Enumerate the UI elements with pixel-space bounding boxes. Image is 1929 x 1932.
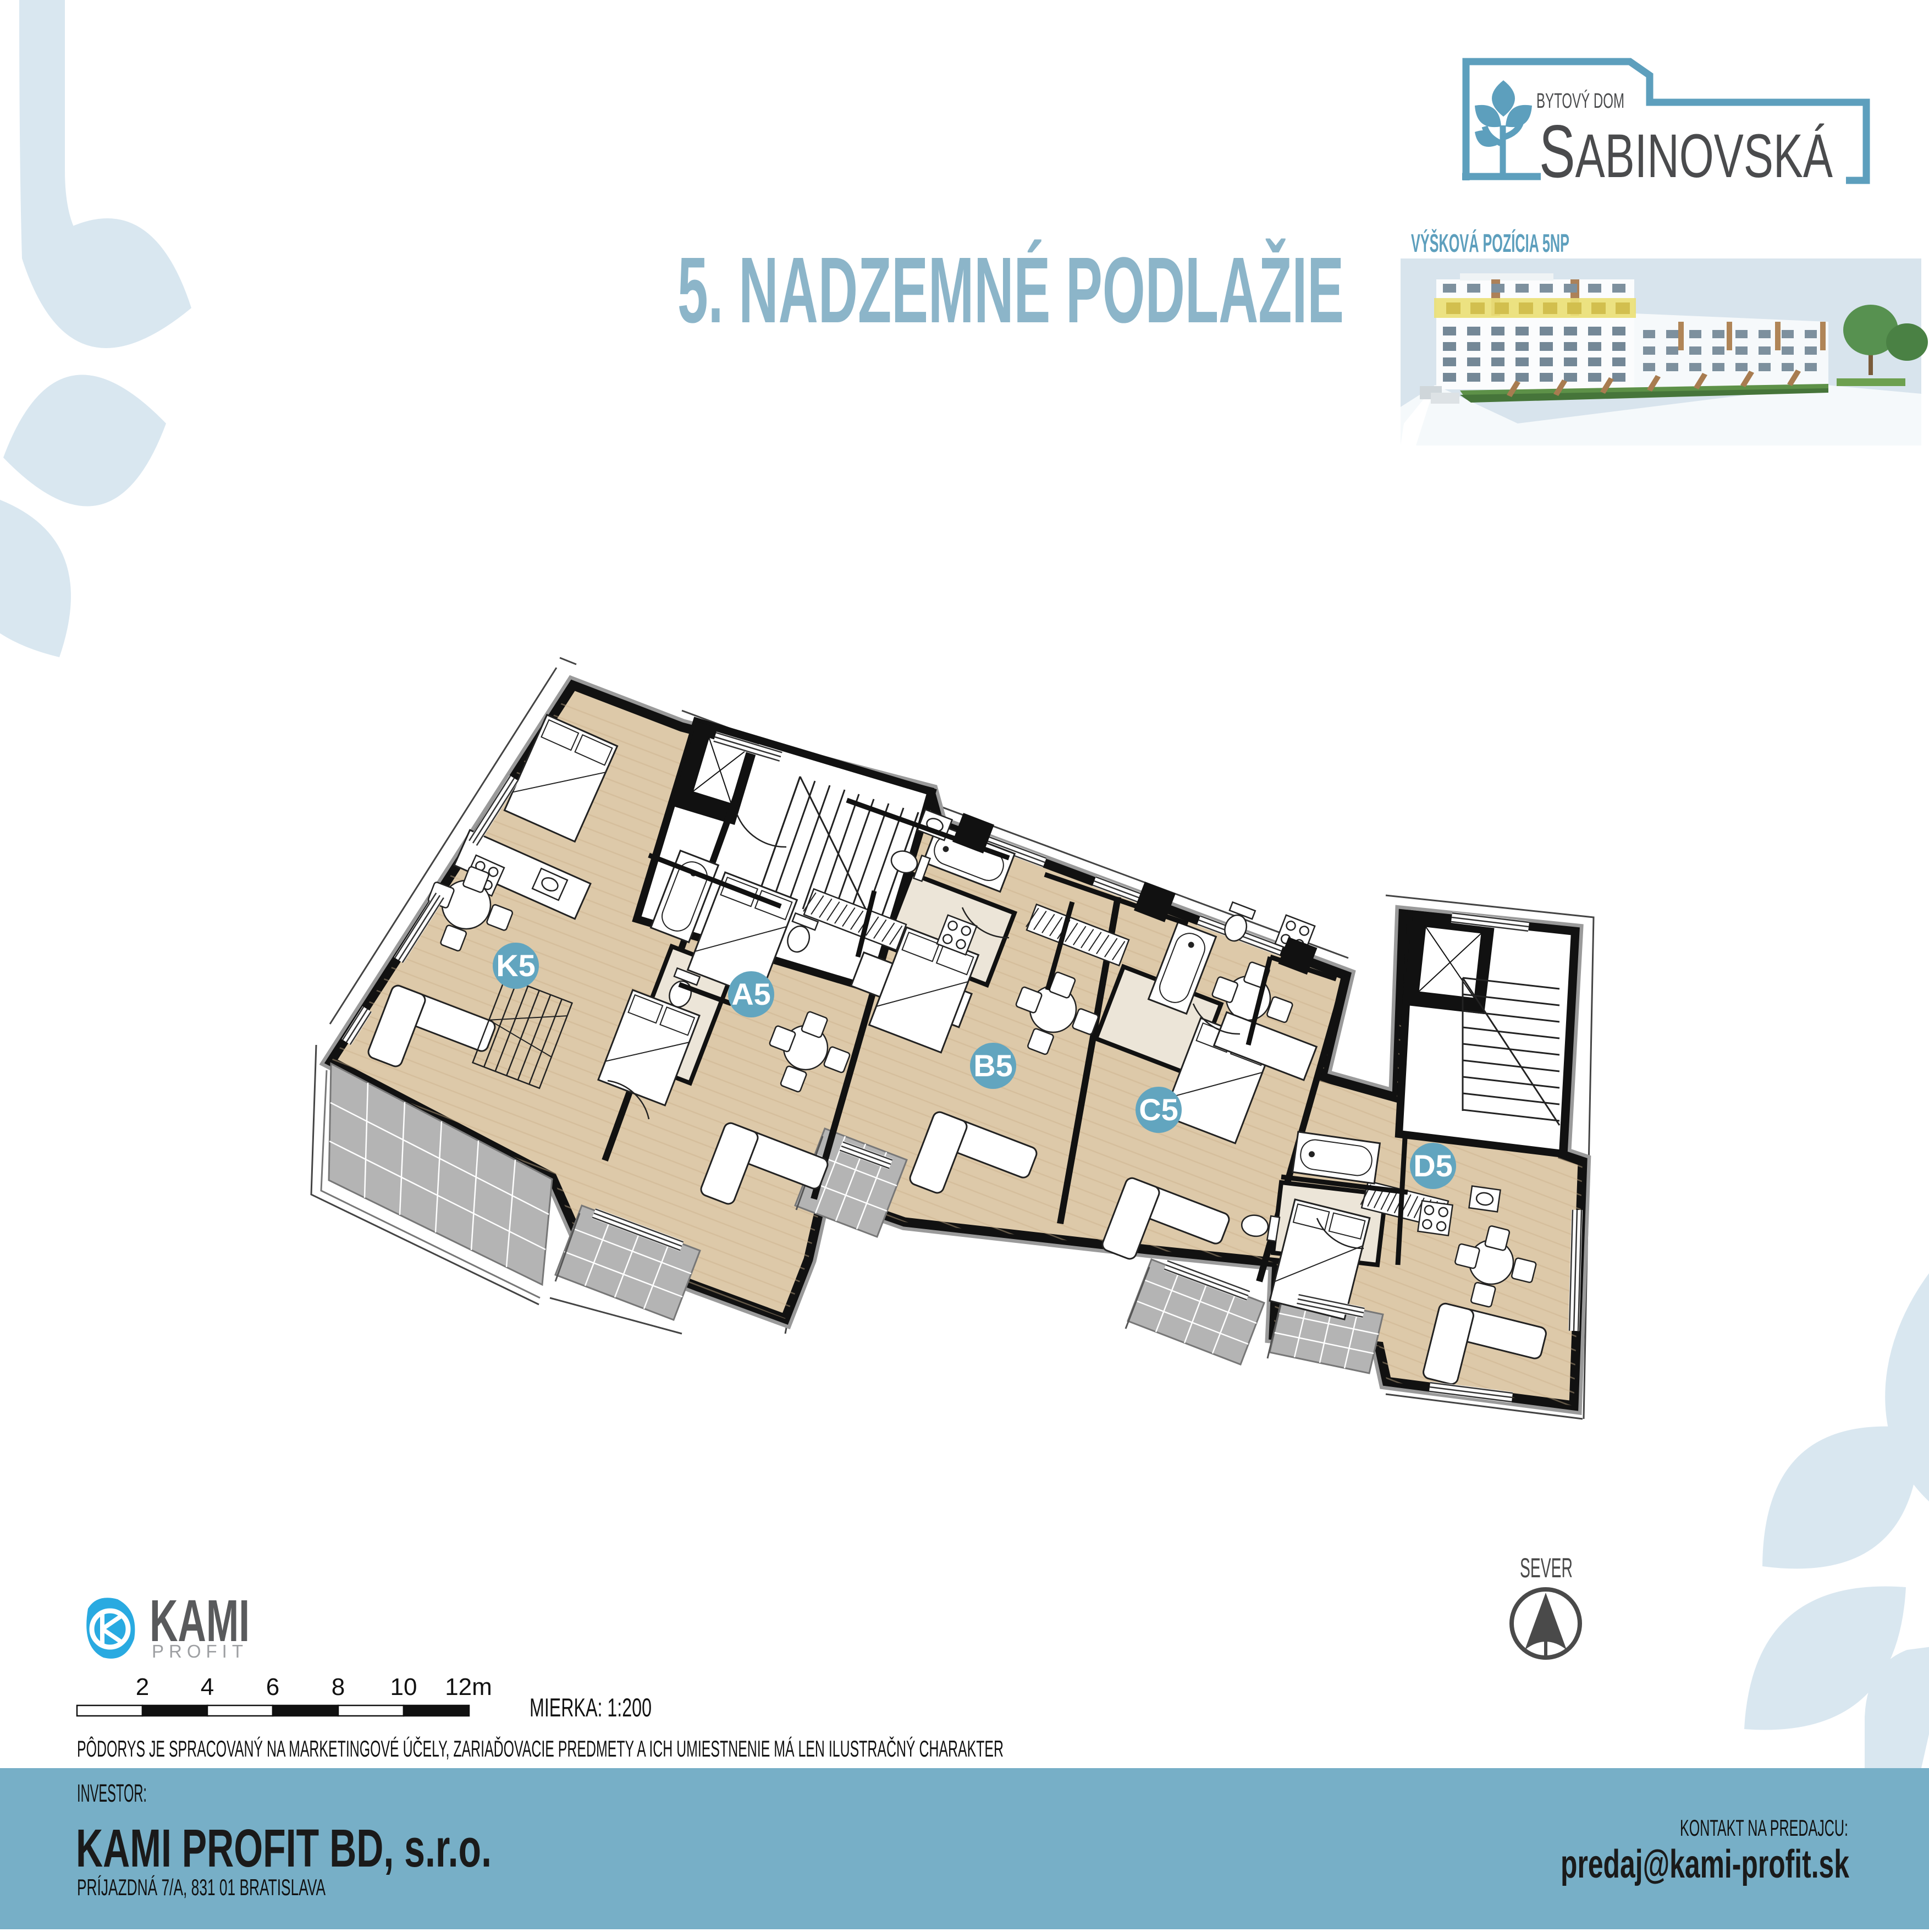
svg-text:10: 10 xyxy=(390,1674,417,1700)
svg-text:SEVER: SEVER xyxy=(1520,1553,1573,1583)
svg-text:D5: D5 xyxy=(1413,1148,1453,1183)
svg-text:PRÍJAZDNÁ 7/A, 831 01 BRATISLA: PRÍJAZDNÁ 7/A, 831 01 BRATISLAVA xyxy=(77,1874,326,1900)
svg-text:INVESTOR:: INVESTOR: xyxy=(77,1779,147,1807)
svg-text:KAMI PROFIT BD, s.r.o.: KAMI PROFIT BD, s.r.o. xyxy=(76,1818,492,1878)
svg-text:PÔDORYS JE SPRACOVANÝ NA MARKE: PÔDORYS JE SPRACOVANÝ NA MARKETINGOVÉ ÚČ… xyxy=(77,1736,1004,1762)
svg-text:12m: 12m xyxy=(445,1674,492,1700)
svg-text:PROFIT: PROFIT xyxy=(152,1641,248,1661)
svg-text:B5: B5 xyxy=(973,1048,1013,1083)
svg-text:predaj@kami-profit.sk: predaj@kami-profit.sk xyxy=(1561,1842,1850,1886)
svg-text:2: 2 xyxy=(136,1674,149,1700)
svg-text:MIERKA: 1:200: MIERKA: 1:200 xyxy=(530,1693,652,1722)
svg-text:6: 6 xyxy=(266,1674,279,1700)
svg-text:5. NADZEMNÉ PODLAŽIE: 5. NADZEMNÉ PODLAŽIE xyxy=(677,238,1344,343)
svg-text:C5: C5 xyxy=(1139,1092,1178,1127)
svg-text:A5: A5 xyxy=(731,977,771,1011)
svg-text:KONTAKT NA PREDAJCU:: KONTAKT NA PREDAJCU: xyxy=(1680,1815,1848,1841)
svg-text:SABINOVSKÁ: SABINOVSKÁ xyxy=(1539,109,1833,193)
svg-text:K5: K5 xyxy=(496,948,536,983)
svg-text:4: 4 xyxy=(201,1674,214,1700)
svg-text:8: 8 xyxy=(332,1674,345,1700)
svg-text:VÝŠKOVÁ POZÍCIA 5NP: VÝŠKOVÁ POZÍCIA 5NP xyxy=(1411,229,1569,257)
